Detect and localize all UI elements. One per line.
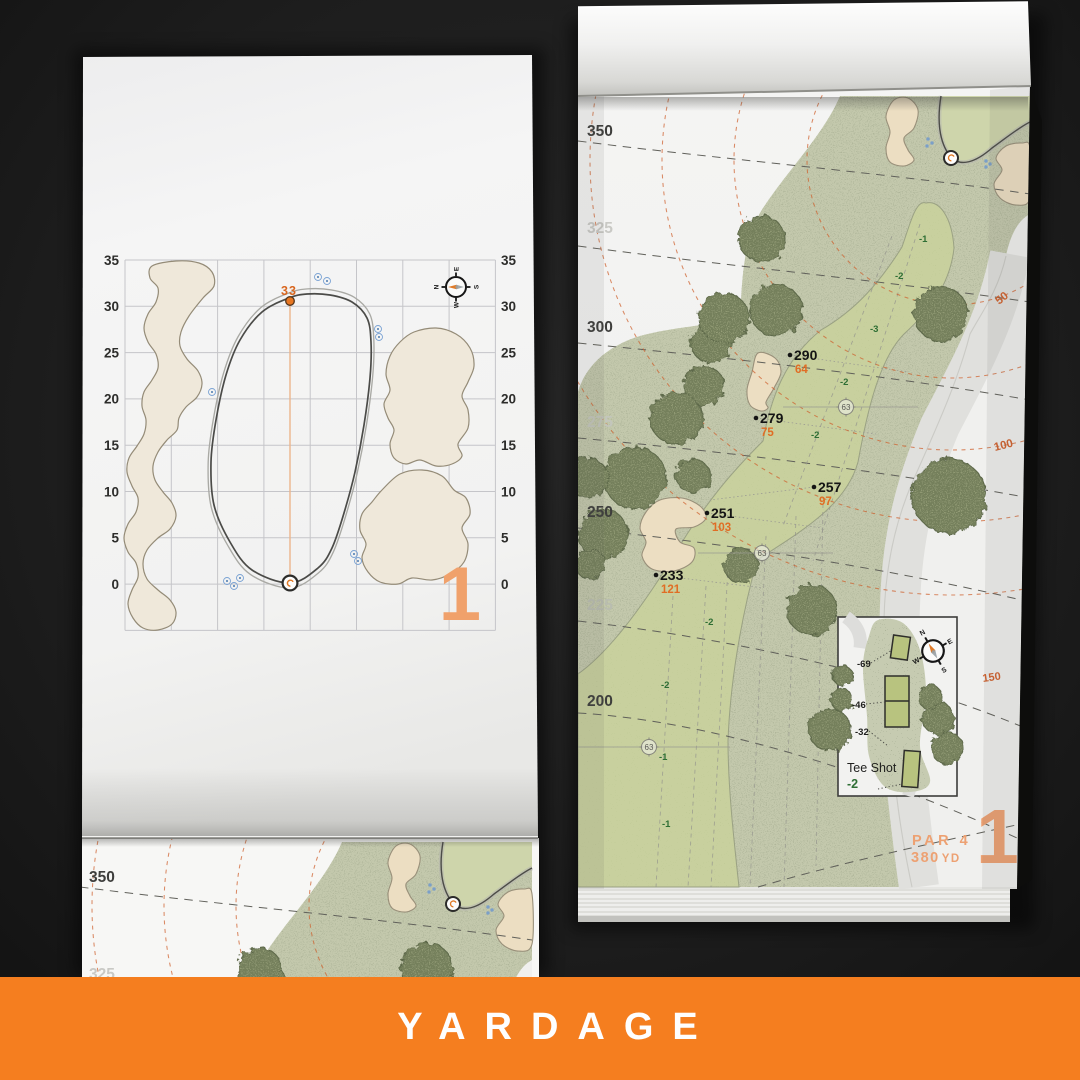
svg-text:1: 1 xyxy=(439,552,481,637)
svg-text:0: 0 xyxy=(501,577,509,592)
svg-text:33: 33 xyxy=(281,284,297,298)
svg-text:5: 5 xyxy=(111,531,119,546)
svg-text:10: 10 xyxy=(104,484,119,499)
svg-text:15: 15 xyxy=(501,438,517,453)
svg-text:35: 35 xyxy=(501,253,517,268)
svg-text:15: 15 xyxy=(104,438,120,453)
svg-text:YARDAGE: YARDAGE xyxy=(397,1006,717,1048)
svg-text:20: 20 xyxy=(501,392,516,407)
svg-text:10: 10 xyxy=(501,484,516,499)
svg-text:25: 25 xyxy=(104,345,120,360)
svg-text:0: 0 xyxy=(111,577,119,592)
svg-text:30: 30 xyxy=(104,299,119,314)
svg-text:25: 25 xyxy=(501,345,517,360)
svg-text:5: 5 xyxy=(501,531,509,546)
svg-text:20: 20 xyxy=(104,392,119,407)
svg-text:30: 30 xyxy=(501,299,516,314)
svg-text:35: 35 xyxy=(104,253,120,268)
